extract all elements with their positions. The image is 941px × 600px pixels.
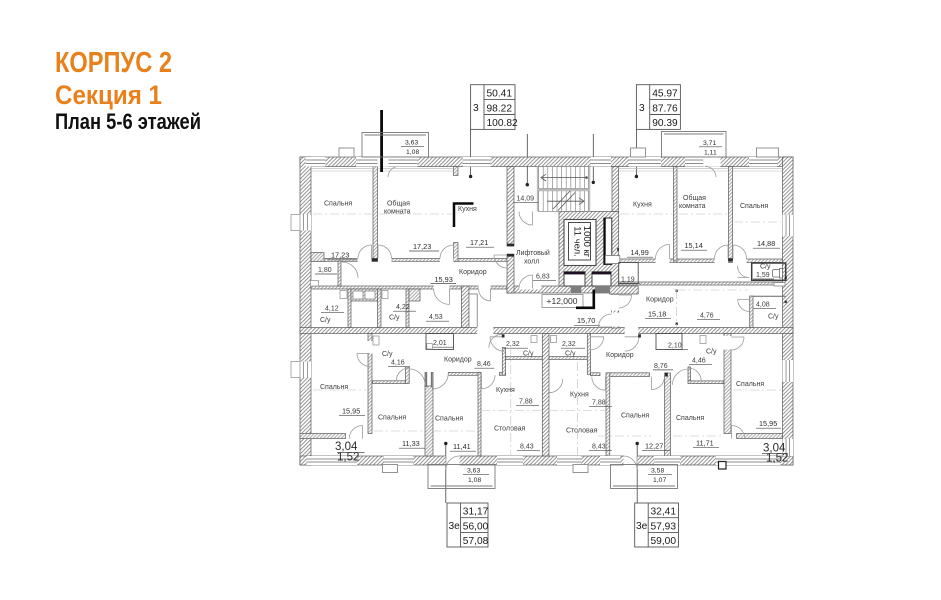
svg-text:С/у: С/у: [706, 349, 717, 356]
svg-text:2,10: 2,10: [668, 343, 682, 350]
svg-text:1,59: 1,59: [756, 272, 770, 279]
svg-text:11 чел.: 11 чел.: [572, 226, 583, 257]
svg-text:12,27: 12,27: [645, 442, 663, 451]
svg-text:7,88: 7,88: [592, 400, 606, 407]
svg-text:32,41: 32,41: [651, 507, 677, 518]
svg-text:3,71: 3,71: [703, 140, 716, 147]
svg-text:15,95: 15,95: [759, 419, 777, 428]
svg-text:4,16: 4,16: [391, 360, 405, 367]
svg-text:4,53: 4,53: [429, 314, 443, 321]
svg-text:Коридор: Коридор: [444, 357, 472, 364]
svg-text:1,19: 1,19: [621, 277, 635, 284]
svg-text:+12,000: +12,000: [547, 296, 578, 306]
svg-text:1,08: 1,08: [406, 149, 419, 156]
svg-text:1,52: 1,52: [337, 452, 359, 464]
svg-text:Кухня: Кухня: [496, 387, 515, 394]
svg-text:11,41: 11,41: [453, 442, 471, 451]
svg-text:3: 3: [639, 103, 645, 114]
svg-text:Кухня: Кухня: [458, 206, 477, 213]
svg-text:3,58: 3,58: [651, 468, 664, 475]
svg-text:98.22: 98.22: [487, 103, 513, 114]
svg-text:3,63: 3,63: [467, 468, 480, 475]
svg-text:15,14: 15,14: [685, 241, 703, 250]
svg-text:45.97: 45.97: [652, 89, 678, 100]
svg-text:57,08: 57,08: [463, 536, 489, 547]
svg-text:14,99: 14,99: [631, 248, 649, 257]
svg-text:6,83: 6,83: [536, 274, 550, 281]
svg-text:Столовая: Столовая: [494, 426, 526, 433]
svg-text:Спальня: Спальня: [324, 201, 352, 208]
svg-text:17,21: 17,21: [470, 238, 488, 247]
svg-text:4,46: 4,46: [692, 358, 706, 365]
svg-text:15,18: 15,18: [648, 310, 666, 319]
svg-text:17,23: 17,23: [331, 251, 349, 260]
svg-text:Спальня: Спальня: [435, 416, 463, 423]
svg-text:Общая: Общая: [387, 200, 410, 208]
svg-text:С/у: С/у: [389, 315, 400, 322]
svg-text:87.76: 87.76: [652, 103, 678, 114]
svg-text:Лифтовый: Лифтовый: [516, 249, 550, 257]
svg-text:Спальня: Спальня: [736, 381, 764, 388]
svg-text:15,95: 15,95: [342, 407, 360, 416]
svg-text:100.82: 100.82: [487, 118, 518, 129]
svg-text:С/у: С/у: [523, 351, 534, 358]
svg-text:Секция 1: Секция 1: [55, 80, 162, 110]
svg-text:2,32: 2,32: [562, 341, 576, 348]
svg-text:14,09: 14,09: [517, 196, 535, 203]
svg-text:8,76: 8,76: [654, 363, 668, 370]
svg-text:3е: 3е: [636, 521, 648, 532]
svg-text:1,08: 1,08: [468, 477, 481, 484]
svg-text:56,00: 56,00: [463, 521, 489, 532]
svg-text:57,93: 57,93: [651, 521, 677, 532]
svg-text:Коридор: Коридор: [459, 269, 487, 276]
svg-text:8,46: 8,46: [477, 361, 491, 368]
svg-text:1,80: 1,80: [318, 267, 332, 274]
svg-text:Спальня: Спальня: [740, 203, 768, 210]
svg-text:С/у: С/у: [320, 317, 331, 324]
svg-text:Коридор: Коридор: [606, 352, 634, 359]
svg-text:4,08: 4,08: [756, 302, 770, 309]
svg-text:11,33: 11,33: [402, 439, 420, 448]
svg-text:8,43: 8,43: [520, 444, 534, 451]
svg-text:3: 3: [473, 103, 479, 114]
svg-text:1,52: 1,52: [766, 453, 788, 465]
svg-text:КОРПУС 2: КОРПУС 2: [55, 47, 172, 79]
svg-text:Кухня: Кухня: [570, 392, 589, 399]
svg-text:Коридор: Коридор: [646, 297, 674, 304]
svg-text:4,22: 4,22: [396, 304, 410, 311]
svg-text:31,17: 31,17: [463, 507, 489, 518]
svg-text:С/у: С/у: [768, 314, 779, 321]
svg-text:План 5-6 этажей: План 5-6 этажей: [55, 109, 201, 134]
svg-text:холл: холл: [524, 259, 539, 266]
svg-text:90.39: 90.39: [652, 118, 678, 129]
svg-text:С/у: С/у: [565, 351, 576, 358]
svg-text:14,88: 14,88: [757, 239, 775, 248]
svg-text:3,63: 3,63: [405, 140, 418, 147]
svg-text:комната: комната: [384, 209, 411, 216]
svg-text:2,01: 2,01: [433, 340, 447, 347]
svg-text:Общая: Общая: [683, 194, 706, 202]
svg-text:С/у: С/у: [382, 351, 393, 358]
svg-text:59,00: 59,00: [651, 536, 677, 547]
svg-text:Кухня: Кухня: [633, 202, 652, 209]
svg-text:11,71: 11,71: [696, 439, 714, 448]
svg-text:1,11: 1,11: [704, 150, 717, 157]
svg-text:17,23: 17,23: [413, 242, 431, 251]
svg-text:50.41: 50.41: [487, 89, 513, 100]
svg-text:Столовая: Столовая: [566, 428, 598, 435]
svg-text:1,07: 1,07: [653, 477, 666, 484]
svg-text:С/у: С/у: [760, 264, 771, 271]
svg-text:7,88: 7,88: [519, 399, 533, 406]
svg-text:Спальня: Спальня: [378, 415, 406, 422]
svg-text:3е: 3е: [449, 521, 461, 532]
svg-text:2,32: 2,32: [506, 341, 520, 348]
svg-text:комната: комната: [679, 203, 706, 210]
svg-text:15,93: 15,93: [435, 275, 453, 284]
svg-text:4,76: 4,76: [700, 313, 714, 320]
svg-text:4,12: 4,12: [325, 306, 339, 313]
svg-text:Спальня: Спальня: [676, 415, 704, 422]
svg-text:8,43: 8,43: [592, 444, 606, 451]
svg-text:15,70: 15,70: [577, 316, 595, 325]
svg-text:Спальня: Спальня: [621, 413, 649, 420]
